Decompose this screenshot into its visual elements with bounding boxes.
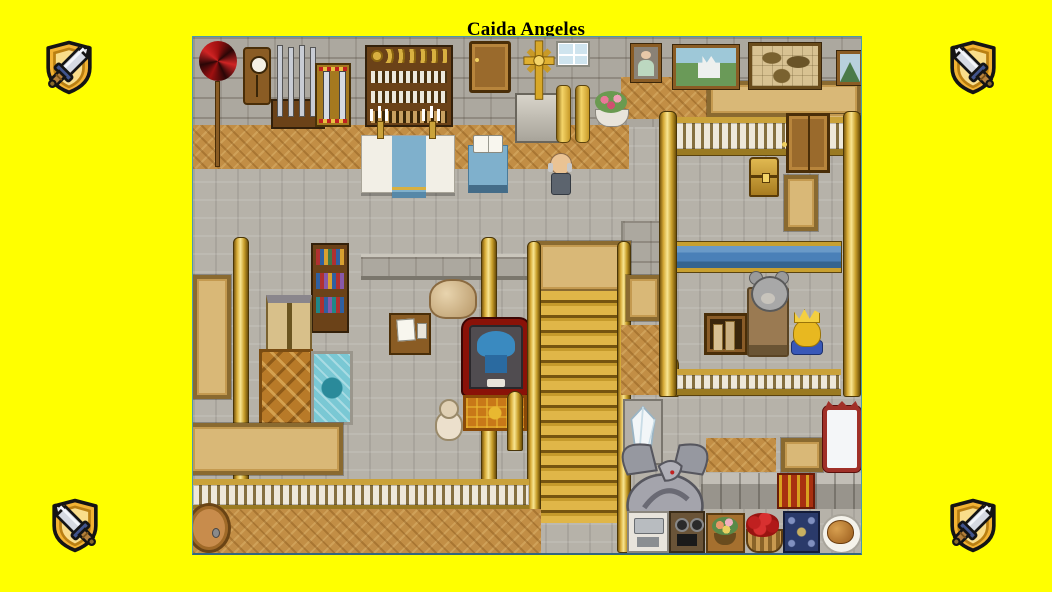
window xyxy=(556,41,590,67)
teddy-bear xyxy=(745,271,791,315)
statue-camel xyxy=(429,279,477,319)
scroll-cupboard xyxy=(704,313,748,355)
wooden-door-right-room xyxy=(786,113,830,173)
flower-bowl xyxy=(593,91,629,127)
sword-shield-icon xyxy=(944,496,1002,554)
wooden-door-top xyxy=(469,41,511,93)
writing-desk xyxy=(389,313,431,355)
sword-shield-icon xyxy=(944,38,1002,96)
crown-on-stand xyxy=(789,309,823,355)
page-background: Caida Angeles xyxy=(0,0,1052,592)
red-carpet-tile xyxy=(777,473,815,509)
throne xyxy=(463,319,529,395)
gold-cross-statue xyxy=(519,39,559,105)
open-book xyxy=(473,135,503,153)
sword-shield-icon xyxy=(46,496,104,554)
sword-rack xyxy=(315,63,351,127)
portrait-painting xyxy=(631,44,661,82)
map-tapestry xyxy=(749,43,821,89)
parquet-bed-floor xyxy=(259,349,313,427)
gold-bar-left xyxy=(556,85,571,143)
roast-turkey-plate xyxy=(820,511,861,553)
patterned-rug xyxy=(783,511,820,553)
grandfather-clock xyxy=(243,47,271,105)
left-wall-rug xyxy=(193,275,231,399)
candelabra-left xyxy=(369,109,389,139)
kitchen-sink xyxy=(627,511,669,553)
stove xyxy=(669,511,705,553)
gold-bar-right xyxy=(575,85,590,143)
red-swirl-ornament xyxy=(199,41,237,81)
bookshelf xyxy=(311,243,349,333)
candelabra-right xyxy=(421,109,441,139)
stone-counter xyxy=(815,473,861,509)
wood-floor-bottom xyxy=(193,509,541,553)
gold-pillar xyxy=(843,111,861,397)
altar-table xyxy=(361,135,455,193)
spear-rack xyxy=(271,45,321,129)
game-map-image xyxy=(192,36,862,555)
gold-newel-post xyxy=(507,391,523,451)
upper-balustrade xyxy=(659,117,861,155)
apple-basket xyxy=(745,513,782,553)
mirror xyxy=(823,406,861,472)
castle-painting xyxy=(673,45,739,89)
npc-priest xyxy=(546,153,574,197)
door-runner-rug xyxy=(784,175,818,231)
wood-strip xyxy=(621,325,659,395)
dog xyxy=(431,399,463,441)
curtained-alcove xyxy=(266,295,312,351)
gold-pillar xyxy=(659,111,677,397)
small-wall-rug xyxy=(626,275,661,321)
lower-balustrade xyxy=(193,479,529,511)
floor-rug xyxy=(193,423,343,475)
blue-wall-banner xyxy=(673,242,841,272)
small-floor-rug xyxy=(781,438,823,472)
room-balustrade xyxy=(677,369,841,395)
stair-rail-left xyxy=(527,241,541,529)
mountain-painting xyxy=(837,51,862,85)
water-basin xyxy=(311,351,353,425)
treasure-chest xyxy=(749,157,779,197)
flower-table xyxy=(706,513,745,553)
sword-shield-icon xyxy=(40,38,98,96)
bell-rope xyxy=(215,81,220,167)
